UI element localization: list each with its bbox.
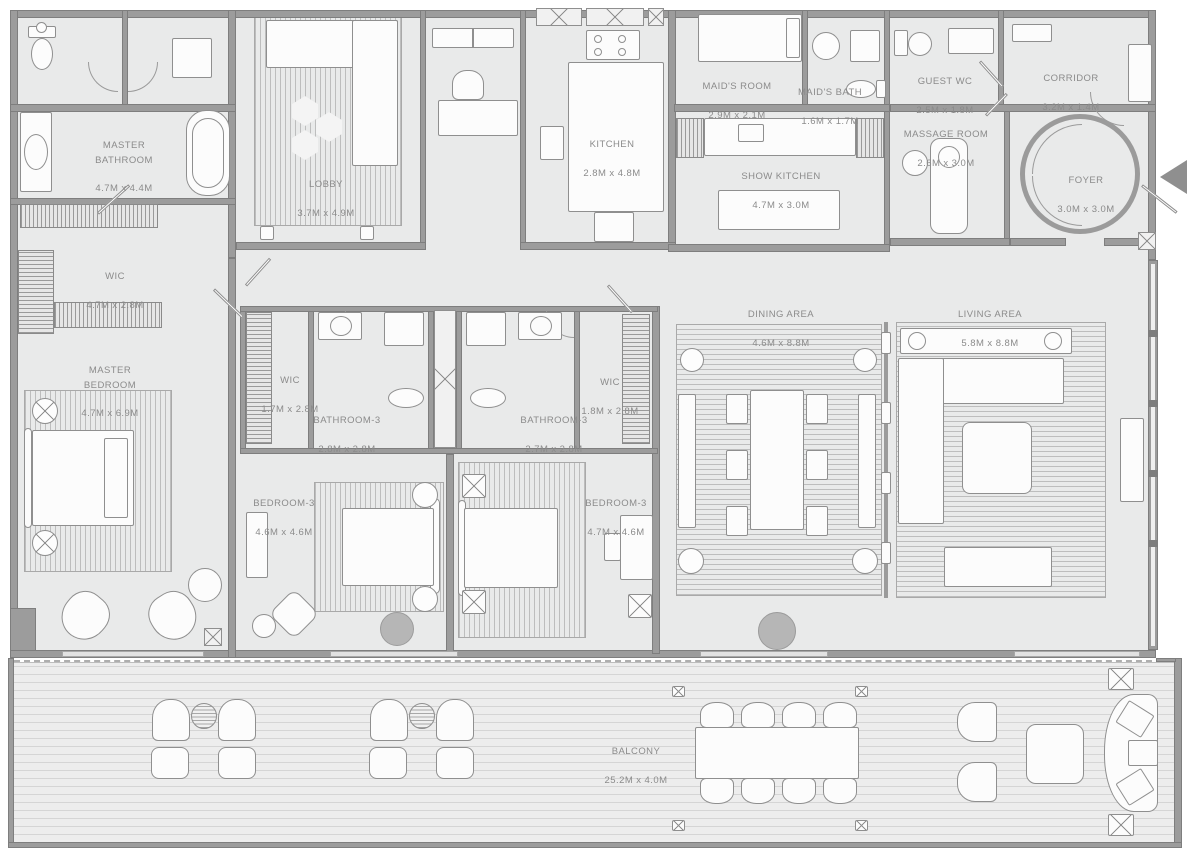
balcony-table [1026,724,1084,784]
sliding-door [62,651,204,657]
dining-chair [806,450,828,480]
room-label-kitchen: KITCHEN 2.8M x 4.8M [583,124,640,195]
room-name: LIVING AREA [958,308,1022,322]
coffee-table [962,422,1032,494]
room-name: DINING AREA [748,308,814,322]
room-name: BEDROOM-3 [585,497,647,511]
divider-column [881,332,891,354]
nightstand [32,398,58,424]
divider-column [881,402,891,424]
balcony-wall-bottom [8,842,1182,848]
room-name: WIC [86,270,143,284]
ceiling-light [852,548,878,574]
maid-bath-sink [812,32,840,60]
speaker-box [462,590,486,614]
room-dims: 4.6M x 8.8M [748,337,814,351]
dining-chair [806,394,828,424]
room-name: BATHROOM-3 [313,414,380,428]
room-name: GUEST WC [916,75,973,89]
room-label-living-area: LIVING AREA 5.8M x 8.8M [958,294,1022,365]
divider-column [881,542,891,564]
window-mullion [1148,400,1158,407]
window-pane-right [1151,264,1155,646]
balcony-deco-box [672,820,685,831]
room-label-lobby: LOBBY 3.7M x 4.9M [297,164,354,235]
corridor-closet-top [1012,24,1052,42]
bath3b-sink [530,316,552,336]
room-label-dining-area: DINING AREA 4.6M x 8.8M [748,294,814,365]
room-name: KITCHEN [583,138,640,152]
balcony-dining-chair [700,778,734,804]
wall-massage-right [1004,108,1010,246]
balcony-side-table [409,703,435,729]
wall-left-step [10,608,36,652]
desk [438,100,518,136]
stove [586,30,640,60]
wc-button [36,22,47,33]
vanity-sink [24,134,48,170]
room-name: WIC [581,376,638,390]
speaker-box [462,474,486,498]
balcony-wall-right [1174,658,1182,848]
balcony-armchair [957,762,997,802]
ceiling-light [678,548,704,574]
dining-chair [726,450,748,480]
room-name: CORRIDOR [1042,72,1099,86]
bathtub-inner [192,118,224,188]
room-name: MASTER BATHROOM [95,139,153,168]
burner [594,35,602,43]
column-marker [360,226,374,240]
room-dims: 2.7M x 2.8M [520,443,587,457]
wall-bedroom-divider [446,454,454,654]
balcony-edge-right [1156,658,1176,662]
room-label-wic-master: WIC 4.7M x 2.8M [86,256,143,327]
room-label-master-bedroom: MASTER BEDROOM 4.7M x 6.9M [81,350,138,436]
ceiling-speaker [412,586,438,612]
room-dims: 25.2M x 4.0M [605,774,668,788]
balcony-boundary-dashed-line [14,660,1172,662]
room-name: BATHROOM-3 [520,414,587,428]
wall-block-bottom [240,448,658,454]
balcony-lounge-chair [152,699,190,741]
balcony-dining-chair [782,778,816,804]
room-dims: 4.6M x 4.6M [253,526,315,540]
balcony-ottoman [151,747,189,779]
burner [618,48,626,56]
wall-massage-bottom [890,238,1010,246]
room-name: BEDROOM-3 [253,497,315,511]
maid-bath-shower [850,30,880,62]
balcony-lounge-chair [436,699,474,741]
room-dims: 5.8M x 8.8M [958,337,1022,351]
balcony-lounge-chair [370,699,408,741]
balcony-planter [1108,814,1134,836]
balcony-side-table [191,703,217,729]
burner [594,48,602,56]
shaft-box [1138,232,1156,250]
dining-chair [726,394,748,424]
room-label-wic-2: WIC 1.7M x 2.8M [261,360,318,431]
balcony-dining-table [695,727,859,779]
bed3b [464,508,558,588]
column-marker [260,226,274,240]
room-name: LOBBY [297,178,354,192]
room-dims: 3.2M x 1.4M [1042,101,1099,115]
room-label-balcony: BALCONY 25.2M x 4.0M [605,731,668,802]
room-label-corridor: CORRIDOR 3.2M x 1.4M [1042,58,1099,129]
balcony-dining-chair [823,778,857,804]
room-dims: 4.7M x 4.6M [585,526,647,540]
wall-master-right [228,258,236,658]
balcony-deco-box [855,820,868,831]
corridor-closet-right [1128,44,1152,102]
service-shaft [434,310,456,448]
window-mullion [1148,330,1158,337]
balcony-planter [1108,668,1134,690]
wall-kitchen-left [520,10,526,250]
bedroom-3a-side-table [252,614,276,638]
room-name: BALCONY [605,745,668,759]
floor-box [628,594,652,618]
room-dims: 3.7M x 4.9M [297,207,354,221]
balcony-deco-box [672,686,685,697]
window-mullion [1148,470,1158,477]
room-name: MASTER BEDROOM [81,364,138,393]
room-name: MASSAGE ROOM [904,128,989,142]
room-dims: 3.0M x 3.0M [1057,203,1114,217]
master-bed-headboard [24,428,32,528]
balcony-dining-chair [700,702,734,728]
room-dims: 2.9M x 2.1M [702,109,771,123]
show-kitchen-pilaster [676,118,704,158]
structural-column [758,612,796,650]
wall-kitchen-right [668,10,676,252]
wall-kitchen-bottom [520,242,676,250]
room-dims: 1.8M x 2.8M [581,405,638,419]
floor-box [204,628,222,646]
room-label-maids-bath: MAID'S BATH 1.6M x 1.7M [798,72,862,143]
balcony-ottoman [369,747,407,779]
guest-wc-toilet [908,32,932,56]
room-label-foyer: FOYER 3.0M x 3.0M [1057,160,1114,231]
curved-sofa-seat [1128,740,1158,766]
balcony-armchair [957,702,997,742]
ceiling-speaker [412,482,438,508]
room-name: FOYER [1057,174,1114,188]
bath3b-shower [466,312,506,346]
wall-bath3b-left [456,306,462,454]
window-seat [1120,418,1144,502]
dining-sideboard-left [678,394,696,528]
sofa-chaise [898,358,944,524]
room-label-master-bathroom: MASTER BATHROOM 4.7M x 4.4M [95,125,153,211]
room-dims: 4.7M x 6.9M [81,407,138,421]
guest-wc-sink [948,28,994,54]
dining-sideboard-right [858,394,876,528]
structural-column [380,612,414,646]
balcony-ottoman [436,747,474,779]
wall-lobby-bottom [236,242,426,250]
master-bed-throw [104,438,128,518]
bath3a-sink [330,316,352,336]
window-mullion [1148,540,1158,547]
wall-bedroom3b-right [652,306,660,654]
ceiling-light [680,348,704,372]
wall-foyer-bottom-left [1010,238,1066,246]
kitchen-sink-unit [594,212,634,242]
burner [618,35,626,43]
room-label-massage-room: MASSAGE ROOM 2.6M x 3.0M [904,114,989,185]
room-label-maids-room: MAID'S ROOM 2.9M x 2.1M [702,66,771,137]
room-dims: 4.7M x 2.8M [86,299,143,313]
window-box [536,8,582,26]
window-box [586,8,644,26]
balcony-lounge-chair [218,699,256,741]
room-name: SHOW KITCHEN [741,170,820,184]
wall-lobby-right [420,10,426,250]
dining-table [750,390,804,530]
balcony-dining-chair [782,702,816,728]
balcony-deco-box [855,686,868,697]
room-label-bathroom-3a: BATHROOM-3 2.8M x 2.8M [313,400,380,471]
maid-bath-cistern [876,80,886,98]
room-name: MAID'S BATH [798,86,862,100]
floor-plan: MASTER BATHROOM 4.7M x 4.4M LOBBY 3.7M x… [0,0,1192,852]
room-dims: 1.7M x 2.8M [261,403,318,417]
balcony-ottoman [218,747,256,779]
fridge [540,126,564,160]
dining-chair [726,506,748,536]
room-label-wic-3: WIC 1.8M x 2.8M [581,362,638,433]
wall-showkitchen-bottom [668,244,890,252]
nightstand [32,530,58,556]
room-name: MAID'S ROOM [702,80,771,94]
room-label-show-kitchen: SHOW KITCHEN 4.7M x 3.0M [741,156,820,227]
wall-top [10,10,1156,18]
room-dims: 2.8M x 2.8M [313,443,380,457]
room-label-bathroom-3b: BATHROOM-3 2.7M x 2.8M [520,400,587,471]
desk-chair [452,70,484,100]
room-label-bedroom-3b: BEDROOM-3 4.7M x 4.6M [585,483,647,554]
room-label-bedroom-3a: BEDROOM-3 4.6M x 4.6M [253,483,315,554]
bath3b-tub [470,388,506,408]
shower-tray [172,38,212,78]
sliding-door [700,651,828,657]
wic-master-wardrobe-left [18,250,54,334]
bath3a-tub [388,388,424,408]
sliding-door [1014,651,1140,657]
balcony-dining-chair [823,702,857,728]
window-box [648,8,664,26]
entry-arrow-icon [1160,160,1187,194]
ceiling-light [853,348,877,372]
divider-column [881,472,891,494]
room-dims: 4.7M x 3.0M [741,199,820,213]
media-console [944,547,1052,587]
room-dims: 4.7M x 4.4M [95,182,153,196]
maid-bed-pillow [786,18,800,58]
room-name: WIC [261,374,318,388]
room-dims: 2.8M x 4.8M [583,167,640,181]
speaker [1044,332,1062,350]
room-dims: 2.6M x 3.0M [904,157,989,171]
sliding-door [330,651,458,657]
wall-toilet-divider [122,10,128,112]
bed3a [342,508,434,586]
nook-window-mullion [472,28,474,48]
speaker [908,332,926,350]
guest-wc-cistern [894,30,908,56]
room-dims: 1.6M x 1.7M [798,115,862,129]
balcony-wall-left [8,658,14,848]
toilet-bowl [31,38,53,70]
balcony-dining-chair [741,778,775,804]
side-table [188,568,222,602]
wall-showkitchen-right [884,10,890,252]
dining-chair [806,506,828,536]
balcony-dining-chair [741,702,775,728]
bath3a-shower [384,312,424,346]
lobby-sofa-chaise [352,20,398,166]
